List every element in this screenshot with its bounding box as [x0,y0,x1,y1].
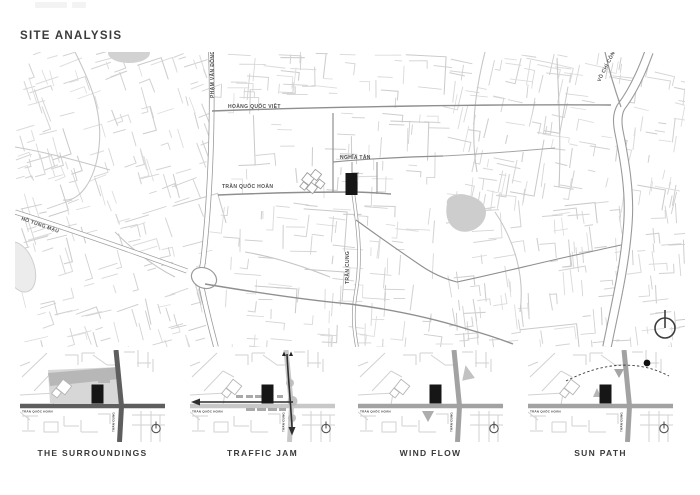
collector-streets [15,52,560,312]
top-watermark [35,2,86,8]
street-label-tran-cung: TRẦN CUNG [344,251,351,284]
site-analysis-board: { "title": "SITE ANALYSIS", "main_map": … [0,0,700,495]
stadium-block [15,237,42,296]
wind-arrow-south-icon [422,411,434,422]
page-title: SITE ANALYSIS [20,30,122,42]
sun-arrow-down-icon [614,369,624,378]
building-cluster [300,169,325,193]
panel-map-sun-path [528,350,673,442]
caption-traffic-jam: TRAFFIC JAM [190,448,335,458]
caption-surroundings: THE SURROUNDINGS [20,448,165,458]
street-label-nghia-tan: NGHĨA TÂN [340,154,371,161]
site-map: HOÀNG QUỐC VIỆT PHẠM VĂN ĐỒNG VÕ CHÍ CÔN… [15,52,685,347]
sun-icon [644,360,651,367]
panel-map-traffic-jam [190,350,335,442]
vehicle-queues [236,395,286,411]
roundabout [188,264,220,293]
main-streets [205,105,621,344]
park-area [108,52,150,63]
wind-arrow-north-icon [459,364,475,381]
minor-street-network [16,52,685,347]
site-building [92,385,104,404]
pond [446,194,486,232]
site-building [346,173,358,195]
panel-map-wind-flow [358,350,503,442]
site-building [600,385,612,404]
street-label-tran-quoc-hoan: TRẦN QUỐC HOÀN [222,183,273,190]
street-label-pham-van-dong: PHẠM VĂN ĐỒNG [209,52,216,98]
street-label-hoang-quoc-viet: HOÀNG QUỐC VIỆT [228,102,281,110]
caption-wind-flow: WIND FLOW [358,448,503,458]
panel-map-surroundings [20,350,165,442]
site-building [262,385,274,404]
site-building [430,385,442,404]
caption-sun-path: SUN PATH [528,448,673,458]
